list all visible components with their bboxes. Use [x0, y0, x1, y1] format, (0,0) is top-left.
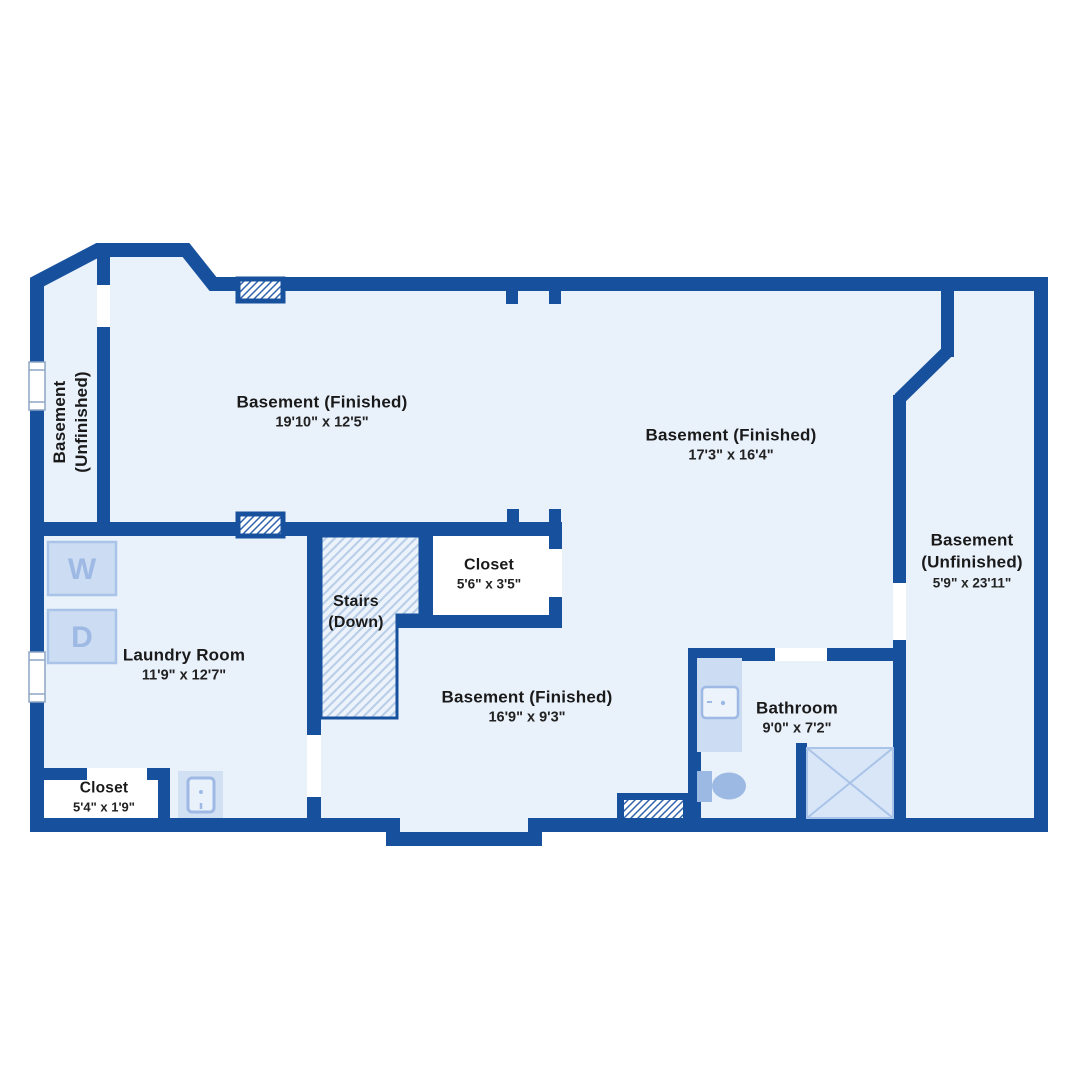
- floor-plan-drawing: W D: [0, 0, 1080, 1080]
- room-dimensions: 5'4" x 1'9": [73, 799, 135, 816]
- vent-top-wall: [238, 279, 283, 301]
- room-name: Basement (Finished): [442, 687, 613, 709]
- room-label-bathroom: Bathroom 9'0" x 7'2": [756, 698, 838, 739]
- room-dimensions: 16'9" x 9'3": [442, 709, 613, 728]
- room-name: Basement (Finished): [237, 392, 408, 414]
- room-label-closet-top: Closet 5'6" x 3'5": [457, 555, 521, 594]
- window-icon: [29, 362, 45, 410]
- room-name: Stairs: [328, 591, 383, 612]
- room-name: (Unfinished): [71, 371, 93, 473]
- window-icon: [29, 652, 45, 702]
- water-heater-icon: [178, 771, 223, 818]
- room-label-basement-unfinished-left: Basement (Unfinished): [49, 371, 93, 473]
- room-name: Basement (Finished): [646, 425, 817, 447]
- floor-plan-page: W D Basement (Unf: [0, 0, 1080, 1080]
- room-name: Bathroom: [756, 698, 838, 720]
- room-dimensions: 17'3" x 16'4": [646, 447, 817, 466]
- room-label-laundry: Laundry Room 11'9" x 12'7": [123, 645, 245, 686]
- vent-laundry-wall: [238, 514, 283, 536]
- room-dimensions: 11'9" x 12'7": [123, 667, 245, 686]
- room-name: Laundry Room: [123, 645, 245, 667]
- room-label-basement-unfinished-right: Basement (Unfinished) 5'9" x 23'11": [921, 530, 1023, 593]
- room-name: Basement: [921, 530, 1023, 552]
- room-label-stairs: Stairs (Down): [328, 591, 383, 633]
- shower-icon: [807, 748, 893, 818]
- room-name: Closet: [73, 779, 135, 799]
- room-dimensions: 5'9" x 23'11": [921, 574, 1023, 593]
- room-name: (Down): [328, 612, 383, 633]
- room-label-basement-finished-top-left: Basement (Finished) 19'10" x 12'5": [237, 392, 408, 433]
- dryer-label: D: [71, 621, 93, 654]
- room-dimensions: 19'10" x 12'5": [237, 414, 408, 433]
- room-name: Closet: [457, 555, 521, 576]
- dryer: D: [48, 610, 116, 663]
- vent-bottom-wall: [617, 793, 690, 832]
- room-name: (Unfinished): [921, 552, 1023, 574]
- washer-label: W: [68, 553, 97, 586]
- room-label-basement-finished-top-right: Basement (Finished) 17'3" x 16'4": [646, 425, 817, 466]
- vanity-sink-icon: [697, 658, 742, 752]
- room-label-basement-finished-middle: Basement (Finished) 16'9" x 9'3": [442, 687, 613, 728]
- washer: W: [48, 542, 116, 595]
- room-dimensions: 9'0" x 7'2": [756, 720, 838, 739]
- room-name: Basement: [49, 371, 71, 473]
- room-label-closet-bottom: Closet 5'4" x 1'9": [73, 779, 135, 816]
- room-dimensions: 5'6" x 3'5": [457, 576, 521, 594]
